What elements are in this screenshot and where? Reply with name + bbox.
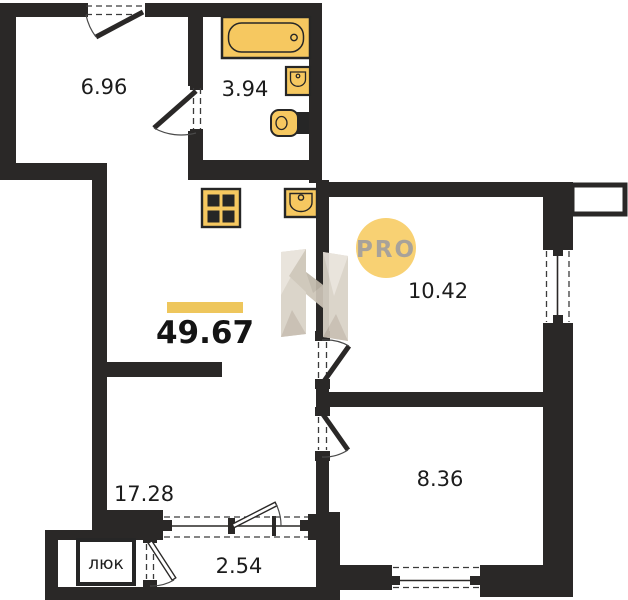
toilet-icon: [271, 110, 309, 136]
total-area-block: 49.67: [156, 302, 254, 351]
sink-icon: [286, 67, 310, 95]
room-label-17-28: 17.28: [114, 482, 174, 506]
bathroom-door-symbol: [154, 88, 201, 135]
loggia-glazing-symbol: [164, 502, 308, 537]
floor-plan: PRO: [0, 0, 628, 600]
stove-icon: [202, 189, 240, 227]
room-label-3-94: 3.94: [222, 77, 269, 101]
floor-plan-canvas: PRO: [0, 0, 628, 600]
total-area-underline: [167, 302, 243, 313]
room-label-10-42: 10.42: [408, 279, 468, 303]
room-label-8-36: 8.36: [417, 467, 464, 491]
window-8-36-symbol: [393, 568, 479, 588]
total-area-value: 49.67: [156, 315, 254, 351]
hatch-label: люк: [88, 554, 123, 574]
window-10-42-symbol: [547, 251, 570, 322]
pro-badge: PRO: [356, 218, 416, 278]
door-room-10-42-symbol: [319, 340, 350, 384]
door-room-8-36-symbol: [319, 413, 349, 457]
room-label-6-96: 6.96: [81, 75, 128, 99]
bathtub-icon: [222, 17, 310, 58]
kitchen-sink-icon: [285, 189, 317, 217]
room-label-2-54: 2.54: [216, 554, 263, 578]
watermark-logo: [281, 249, 348, 341]
exterior-shaft-box: [572, 185, 625, 214]
hatch-door-symbol: [147, 541, 176, 586]
pro-badge-text: PRO: [356, 237, 416, 263]
hatch-box: люк: [78, 540, 134, 584]
balcony-door-symbol: [86, 6, 144, 37]
